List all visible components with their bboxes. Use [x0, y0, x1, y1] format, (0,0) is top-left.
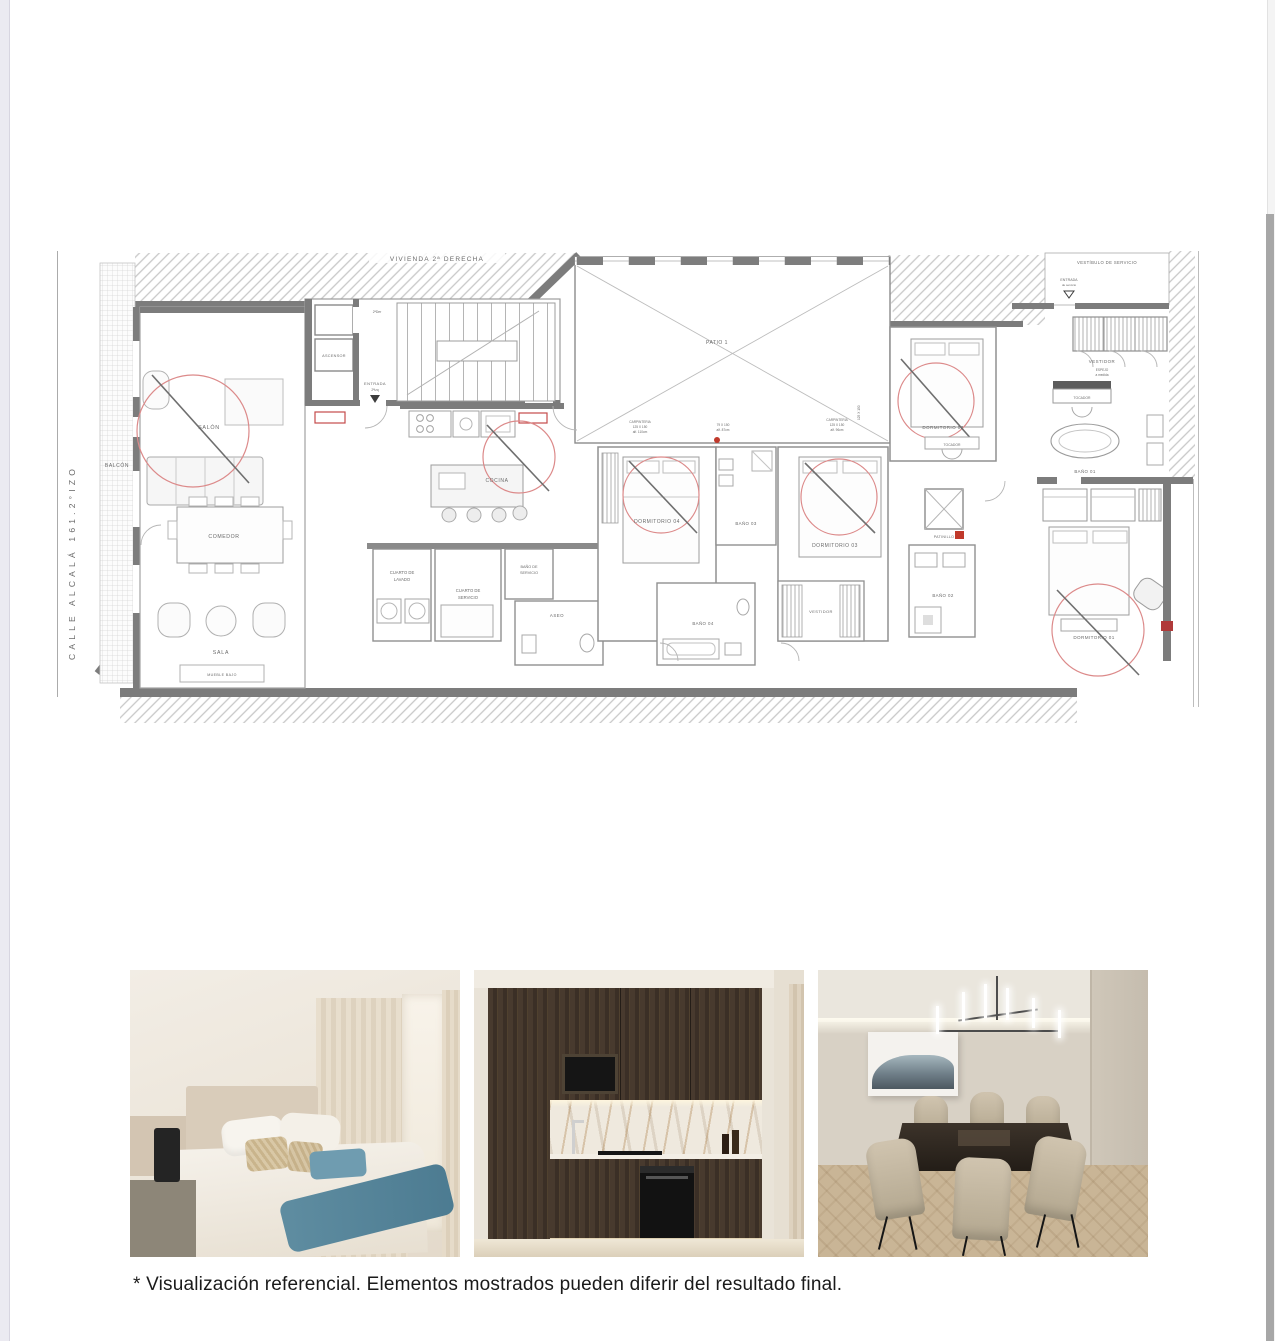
entrada-servicio-2: de servicio	[1062, 283, 1077, 287]
room-label-vestidor-d03: VESTIDOR	[809, 609, 833, 614]
chandelier-light	[984, 984, 987, 1018]
kitchen-bottle	[732, 1130, 739, 1154]
carp-a-1: CARPINTERIA	[629, 420, 651, 424]
carp-a-2: 125 X 150	[633, 425, 648, 429]
room-label-ascensor: ASCENSOR	[322, 354, 346, 358]
shaft-red-marker	[955, 531, 964, 539]
carp-a-3: alf. 110cm	[633, 430, 648, 434]
room-label-comedor: COMEDOR	[208, 534, 239, 540]
photo-kitchen	[474, 970, 804, 1257]
bath-04: BAÑO 04	[657, 583, 755, 665]
carp-c-3: alf. 96cm	[831, 428, 844, 432]
bedroom-lamp	[154, 1128, 180, 1182]
art-watercolor	[872, 1055, 954, 1089]
patio-red-marker	[714, 437, 720, 443]
bedroom-accent-pillow	[244, 1136, 289, 1172]
room-label-dormitorio-01: DORMITORIO 01	[1073, 635, 1114, 640]
room-label-balcon: BALCÓN	[105, 462, 129, 469]
bedroom-blue-pillow	[309, 1148, 367, 1180]
cabinet-seam	[620, 988, 621, 1100]
carp-c-2: 125 X 150	[830, 423, 845, 427]
bedroom-curtain-edge	[442, 990, 460, 1257]
entrada-servicio-1: ENTRADA	[1060, 278, 1078, 282]
espejo-label-2: a medida	[1095, 373, 1108, 377]
kitchen-hob	[598, 1151, 662, 1155]
chandelier-light	[962, 992, 965, 1022]
facade-wall	[133, 307, 140, 688]
room-label-cuarto-lavado-1: CUARTO DE	[390, 570, 415, 575]
room-label-cuarto-lavado-2: LAVADO	[394, 577, 411, 582]
carp-b-1: 79 X 150	[717, 423, 730, 427]
entrada-sub-label: 2ªIzq	[371, 388, 378, 392]
mueble-bajo-label: MUEBLE BAJO	[207, 673, 237, 677]
patinillo-shaft: PATINILLO	[925, 489, 964, 539]
patio: PATIO 1 CARPINTERIA 125 X 150 alf. 110cm…	[575, 257, 890, 443]
left-gutter	[0, 0, 10, 1341]
wall-art	[868, 1032, 958, 1096]
room-label-dormitorio-03: DORMITORIO 03	[812, 543, 858, 549]
balcony: BALCÓN	[100, 263, 135, 683]
kitchen-faucet-spout	[572, 1120, 584, 1123]
table-inlay	[958, 1130, 1010, 1146]
kitchen-floor	[474, 1239, 804, 1257]
under-cabinet-light	[550, 1100, 762, 1107]
room-label-salon: SALÓN	[198, 424, 220, 431]
patio-label: PATIO 1	[706, 340, 728, 346]
scrollbar-thumb[interactable]	[1266, 214, 1274, 1341]
chandelier-light	[936, 1006, 939, 1034]
room-label-patinillo: PATINILLO	[934, 535, 955, 539]
bedroom-03: DORMITORIO 03 VESTIDOR	[778, 447, 888, 641]
bedroom-02: DORMITORIO 02 TOCADOR	[890, 327, 996, 461]
carp-d: 125 X 150	[857, 405, 861, 420]
bedroom-01: DORMITORIO 01	[1037, 477, 1193, 676]
neighbor-dwelling: VIVIENDA 2ª DERECHA	[369, 252, 505, 263]
room-label-bano-servicio-1: BAÑO DE	[520, 564, 538, 569]
chandelier-light	[1006, 988, 1009, 1020]
room-label-cocina: COCINA	[485, 478, 508, 484]
room-label-tocador-master: TOCADOR	[1074, 396, 1091, 400]
floor-plan-drawing: CALLE ALCALÁ 161.2°IZO VIVIENDA 2ª DEREC…	[57, 245, 1200, 732]
door-label-2a-der: 2ªDer	[373, 310, 382, 314]
neighbor-dwelling-label: VIVIENDA 2ª DERECHA	[390, 256, 484, 263]
kitchen-faucet	[572, 1120, 575, 1154]
room-label-vestibulo-servicio: VESTÍBULO DE SERVICIO	[1077, 260, 1137, 265]
espejo-label-1: ESPEJO	[1096, 368, 1109, 372]
street-label: CALLE ALCALÁ 161.2°IZO	[67, 465, 77, 660]
bedroom01-red-marker	[1161, 621, 1173, 631]
room-label-bano-servicio-2: SERVICIO	[520, 571, 538, 575]
carp-c-1: CARPINTERIA	[826, 418, 848, 422]
master-suite: VESTIDOR ESPEJO a medida TOCADOR BAÑO 01	[1051, 317, 1167, 474]
dining-chair	[952, 1157, 1012, 1242]
room-label-tocador-d02: TOCADOR	[944, 443, 961, 447]
bath-03: BAÑO 03	[716, 447, 776, 545]
utility-marker-red-box	[315, 412, 345, 423]
room-label-bano-03: BAÑO 03	[735, 521, 757, 526]
chandelier-arm	[936, 1030, 1060, 1032]
chandelier-light	[1058, 1010, 1061, 1038]
disclaimer-text: * Visualización referencial. Elementos m…	[133, 1274, 842, 1296]
room-label-bano-02: BAÑO 02	[932, 593, 954, 598]
room-label-cuarto-servicio-2: SERVICIO	[458, 595, 479, 600]
kitchen-marble-backsplash	[550, 1100, 762, 1154]
chandelier-light	[1032, 998, 1035, 1028]
kitchen-bottle	[722, 1134, 729, 1154]
room-label-bano-04: BAÑO 04	[692, 621, 714, 626]
render-photos	[130, 970, 1148, 1257]
kitchen-curtain	[789, 984, 804, 1257]
bath-02: BAÑO 02	[909, 545, 975, 637]
room-label-sala: SALA	[213, 650, 229, 656]
brochure-page: CALLE ALCALÁ 161.2°IZO VIVIENDA 2ª DEREC…	[0, 0, 1284, 1341]
carp-b-2: alf. 87cm	[717, 428, 730, 432]
room-label-cuarto-servicio-1: CUARTO DE	[456, 588, 481, 593]
room-label-aseo: ASEO	[550, 613, 564, 618]
bedroom-nightstand	[130, 1180, 196, 1257]
room-label-dormitorio-02: DORMITORIO 02	[922, 425, 963, 430]
kitchen: COCINA	[400, 403, 564, 522]
photo-bedroom	[130, 970, 460, 1257]
oven-handle	[646, 1176, 688, 1179]
room-label-entrada: ENTRADA	[364, 381, 386, 386]
room-label-vestidor-master: VESTIDOR	[1089, 359, 1115, 364]
living-room: SALÓN COMEDOR SALA MUEBLE BAJO	[137, 307, 305, 688]
room-label-dormitorio-04: DORMITORIO 04	[634, 519, 680, 525]
floor-plan: CALLE ALCALÁ 161.2°IZO VIVIENDA 2ª DEREC…	[57, 245, 1200, 732]
kitchen-microwave	[562, 1054, 618, 1094]
photo-dining-room	[818, 970, 1148, 1257]
room-label-bano-01: BAÑO 01	[1074, 469, 1096, 474]
kitchen-tall-cabinet	[488, 988, 550, 1240]
cabinet-seam	[690, 988, 691, 1100]
